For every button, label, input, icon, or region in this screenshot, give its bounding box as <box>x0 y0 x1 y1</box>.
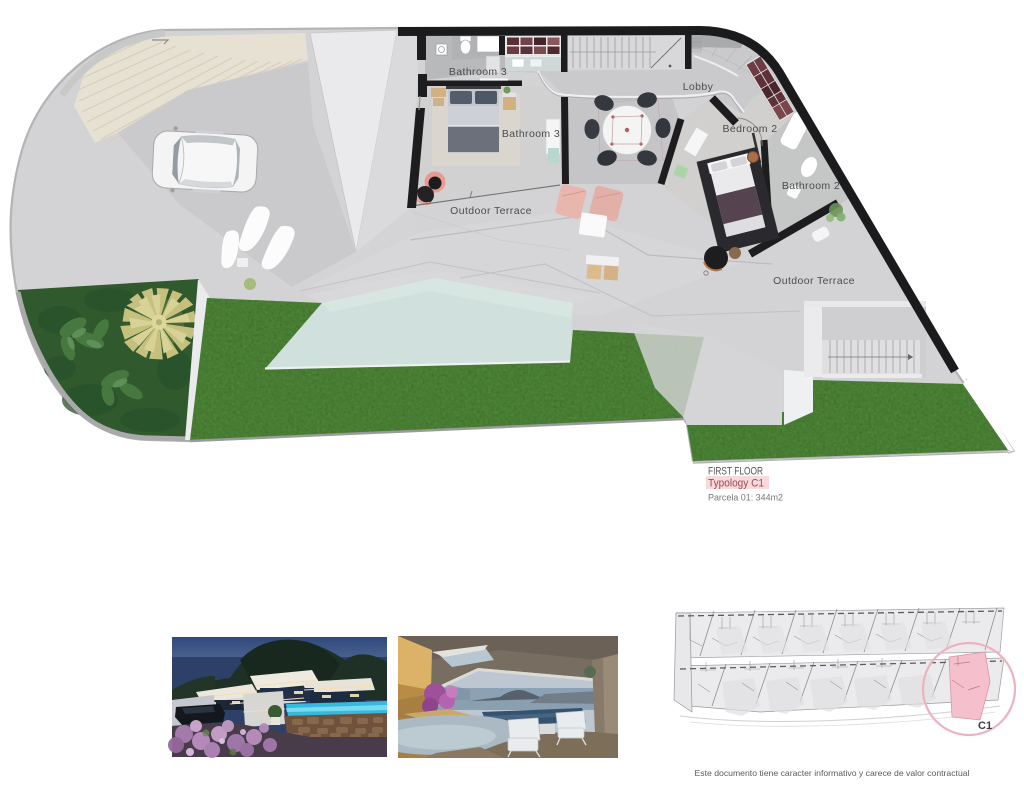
svg-text:Typology C1: Typology C1 <box>708 478 764 490</box>
svg-text:Outdoor Terrace: Outdoor Terrace <box>773 275 855 287</box>
svg-text:FIRST FLOOR: FIRST FLOOR <box>708 466 763 478</box>
svg-text:Lobby: Lobby <box>683 81 714 93</box>
svg-text:Bathroom 2: Bathroom 2 <box>782 180 840 192</box>
svg-text:Bedroom 2: Bedroom 2 <box>723 123 778 135</box>
svg-text:Bathroom 3: Bathroom 3 <box>449 66 507 78</box>
svg-text:Este documento tiene caracter: Este documento tiene caracter informativ… <box>695 768 970 778</box>
svg-text:C1: C1 <box>978 720 992 732</box>
svg-text:Parcela 01: 344m2: Parcela 01: 344m2 <box>708 493 783 504</box>
svg-text:Outdoor Terrace: Outdoor Terrace <box>450 205 532 217</box>
svg-text:Bathroom 3: Bathroom 3 <box>502 128 560 140</box>
